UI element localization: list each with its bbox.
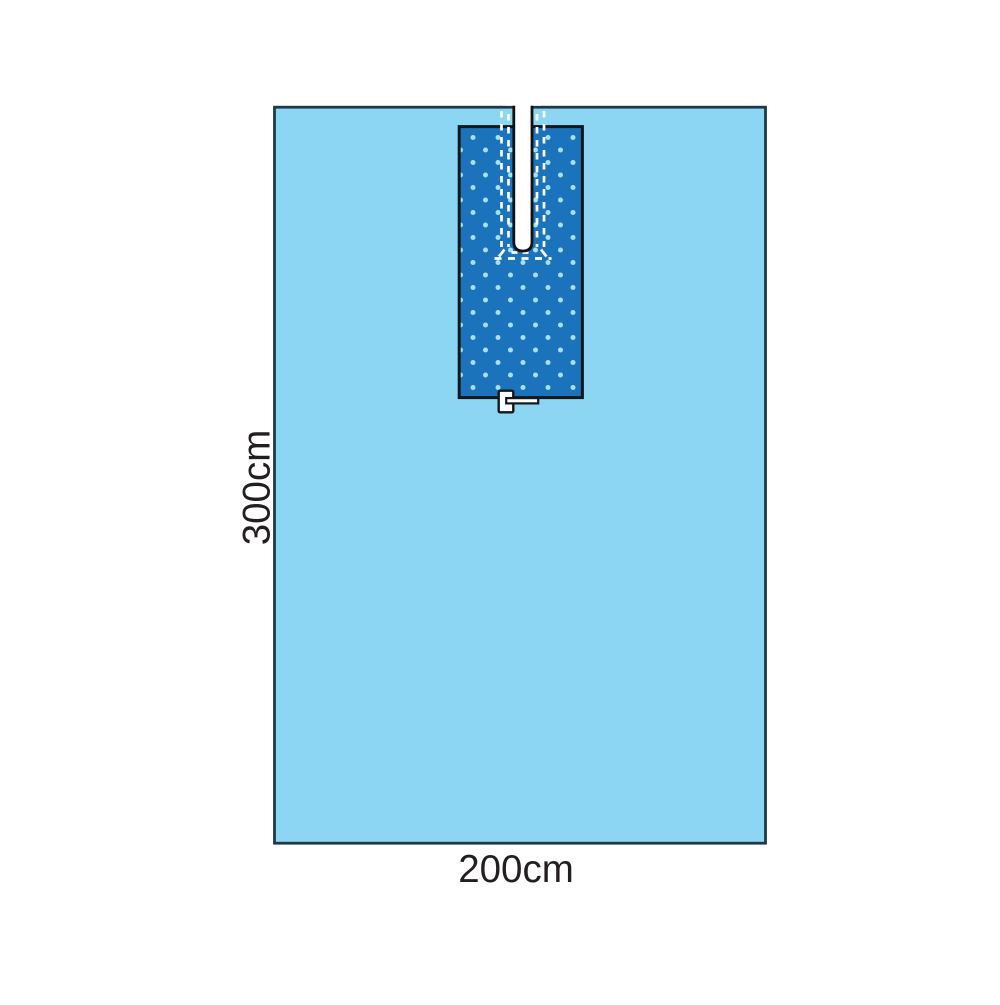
svg-text:200cm: 200cm [458,848,574,891]
svg-text:300cm: 300cm [236,430,279,546]
